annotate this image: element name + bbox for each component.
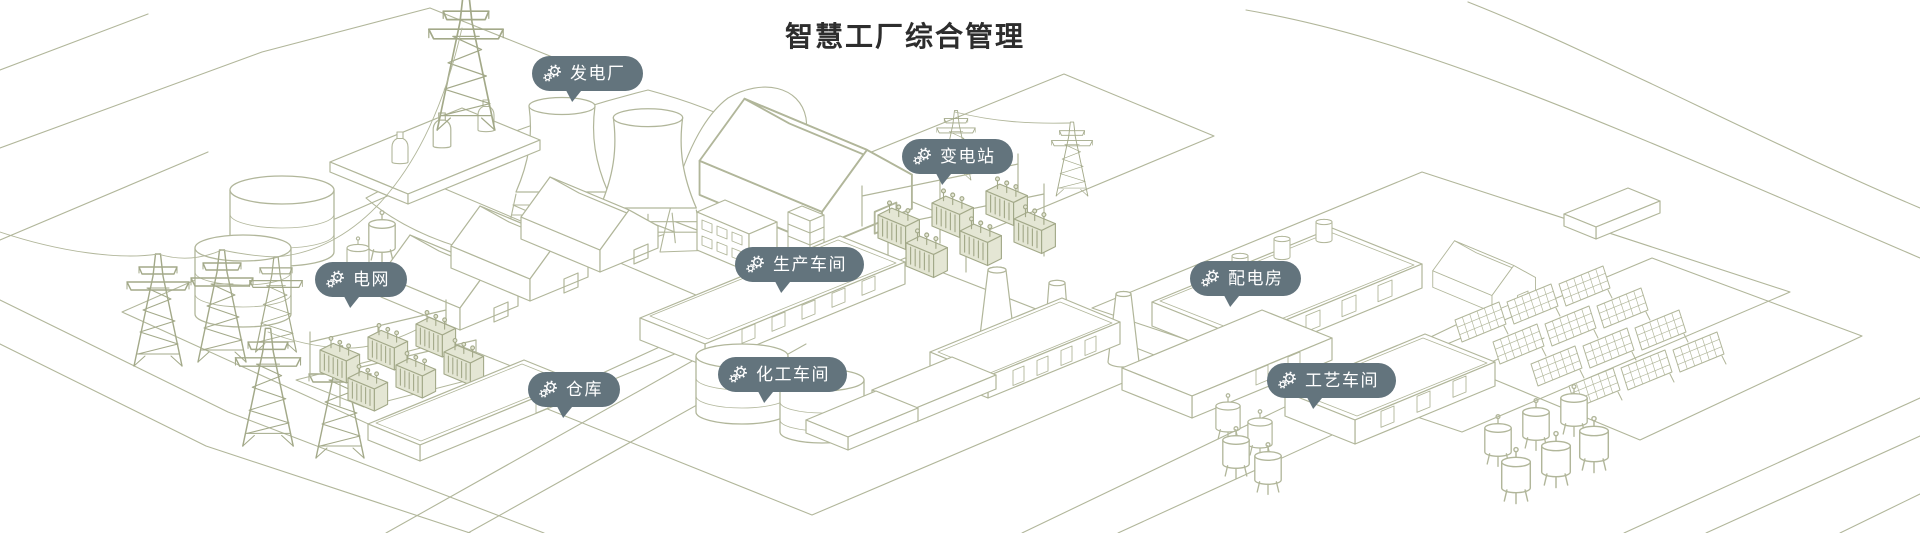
gears-icon bbox=[543, 64, 562, 83]
marker-process-workshop[interactable]: 工艺车间 bbox=[1267, 363, 1396, 398]
gears-icon bbox=[729, 365, 748, 384]
marker-power-grid[interactable]: 电网 bbox=[315, 262, 407, 297]
marker-production-workshop[interactable]: 生产车间 bbox=[735, 247, 864, 282]
marker-label: 变电站 bbox=[940, 139, 996, 174]
marker-label: 发电厂 bbox=[570, 56, 626, 91]
marker-label: 配电房 bbox=[1228, 261, 1284, 296]
gears-icon bbox=[1278, 371, 1297, 390]
marker-label: 仓库 bbox=[566, 372, 603, 407]
marker-chemical-workshop[interactable]: 化工车间 bbox=[718, 357, 847, 392]
marker-warehouse[interactable]: 仓库 bbox=[528, 372, 620, 407]
vent-platform bbox=[330, 100, 540, 204]
marker-label: 化工车间 bbox=[756, 357, 830, 392]
smart-factory-dashboard: 智慧工厂综合管理 发电厂 变电站 电网 bbox=[0, 0, 1920, 533]
gears-icon bbox=[913, 147, 932, 166]
gears-icon bbox=[326, 270, 345, 289]
gears-icon bbox=[746, 255, 765, 274]
gears-icon bbox=[539, 380, 558, 399]
gears-icon bbox=[1201, 269, 1220, 288]
marker-label: 工艺车间 bbox=[1305, 363, 1379, 398]
marker-label: 生产车间 bbox=[773, 247, 847, 282]
factory-illustration bbox=[0, 0, 1920, 533]
marker-distribution-room[interactable]: 配电房 bbox=[1190, 261, 1301, 296]
marker-power-plant[interactable]: 发电厂 bbox=[532, 56, 643, 91]
marker-substation[interactable]: 变电站 bbox=[902, 139, 1013, 174]
marker-label: 电网 bbox=[353, 262, 390, 297]
production-building bbox=[697, 99, 912, 272]
page-title: 智慧工厂综合管理 bbox=[785, 15, 1025, 55]
